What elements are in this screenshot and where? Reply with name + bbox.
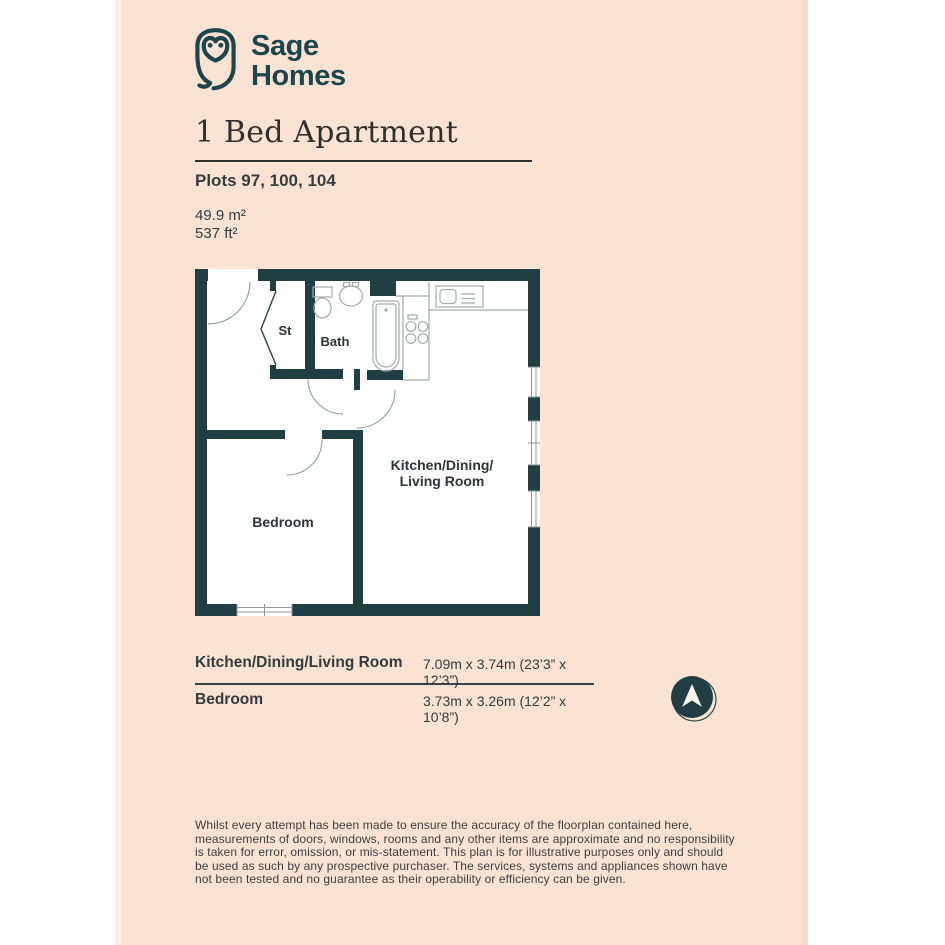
dimensions-table: Kitchen/Dining/Living Room 7.09m x 3.74m… [195,654,594,717]
page-edge-left [115,0,121,945]
floor [195,269,540,616]
room-name: Kitchen/Dining/Living Room [195,654,403,672]
table-row: Bedroom 3.73m x 3.26m (12’2” x 10’8”) [195,691,594,717]
brochure-page: Sage Homes 1 Bed Apartment Plots 97, 100… [0,0,945,945]
room-size: 7.09m x 3.74m (23’3” x 12’3”) [423,656,594,688]
area-figures: 49.9 m² 537 ft² [195,207,246,243]
bedroom-label: Bedroom [252,514,313,530]
kitchen-label-line2: Living Room [400,473,485,489]
room-size: 3.73m x 3.26m (12’2” x 10’8”) [423,693,594,725]
room-name: Bedroom [195,691,263,709]
kitchen-label-line1: Kitchen/Dining/ [391,457,494,473]
brand-line2: Homes [251,61,346,91]
plots-label: Plots 97, 100, 104 [195,171,336,191]
brand-name: Sage Homes [251,31,346,91]
title-underline [195,160,532,162]
floor-plan: St Bath Bedroom Kitchen/Dining/ Living R… [195,269,540,616]
table-row: Kitchen/Dining/Living Room 7.09m x 3.74m… [195,654,594,680]
page-edge-right [802,0,808,945]
disclaimer-text: Whilst every attempt has been made to en… [195,819,735,887]
north-arrow-icon [668,673,720,725]
area-m2: 49.9 m² [195,207,246,225]
sage-homes-logo: Sage Homes [194,27,346,92]
bath-label: Bath [321,334,350,349]
area-ft2: 537 ft² [195,225,246,243]
storage-label: St [279,323,293,338]
owl-logo-icon [194,27,237,92]
page-title: 1 Bed Apartment [195,115,458,150]
brand-line1: Sage [251,31,346,61]
